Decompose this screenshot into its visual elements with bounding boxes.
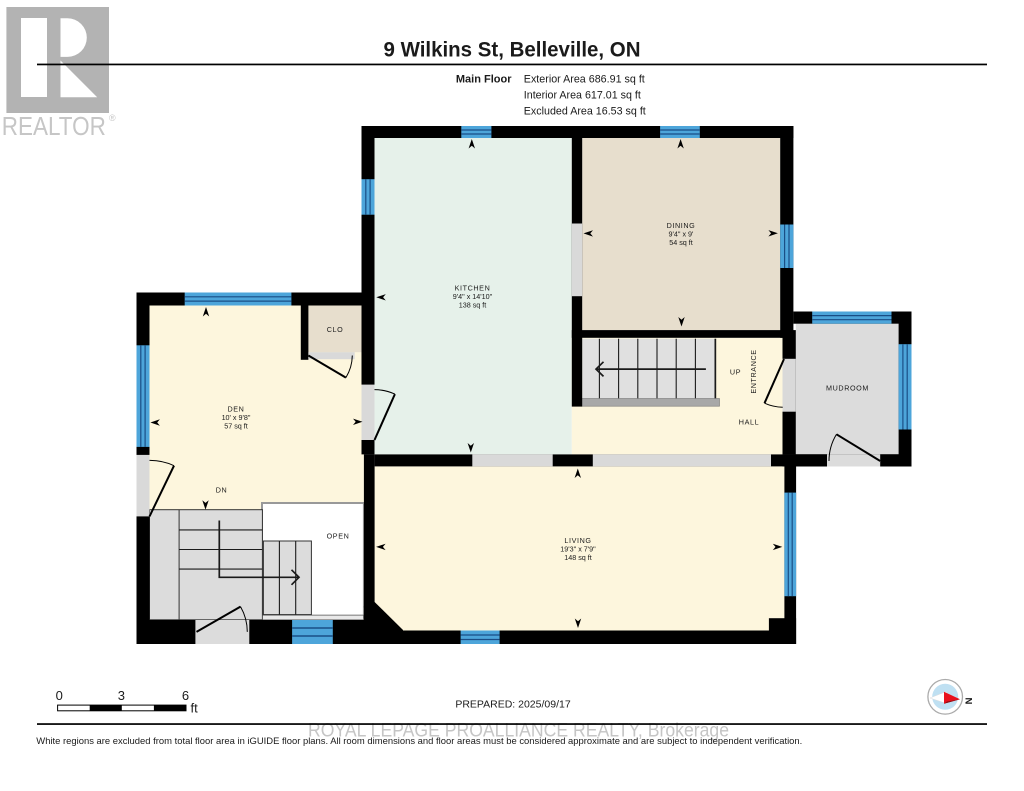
svg-text:ENTRANCE: ENTRANCE xyxy=(749,349,758,393)
svg-text:White regions are excluded fro: White regions are excluded from total fl… xyxy=(36,736,802,747)
svg-text:PREPARED: 2025/09/17: PREPARED: 2025/09/17 xyxy=(455,699,571,711)
svg-text:3: 3 xyxy=(118,688,125,703)
svg-text:ft: ft xyxy=(191,701,199,716)
svg-text:Main Floor: Main Floor xyxy=(456,73,512,85)
svg-text:®: ® xyxy=(109,113,116,123)
svg-text:CLO: CLO xyxy=(327,325,344,334)
svg-text:REALTOR: REALTOR xyxy=(2,113,106,141)
svg-text:54 sq ft: 54 sq ft xyxy=(669,238,693,247)
svg-text:138 sq ft: 138 sq ft xyxy=(459,301,487,310)
svg-text:KITCHEN: KITCHEN xyxy=(455,283,491,292)
svg-text:MUDROOM: MUDROOM xyxy=(826,384,869,393)
svg-text:HALL: HALL xyxy=(739,418,759,427)
svg-text:Exterior Area 686.91 sq ft: Exterior Area 686.91 sq ft xyxy=(524,73,645,85)
svg-text:DN: DN xyxy=(216,486,228,495)
svg-text:N: N xyxy=(963,698,974,705)
svg-text:0: 0 xyxy=(56,688,63,703)
svg-text:57 sq ft: 57 sq ft xyxy=(224,421,248,430)
svg-text:9 Wilkins St, Belleville, ON: 9 Wilkins St, Belleville, ON xyxy=(384,39,641,62)
svg-text:6: 6 xyxy=(182,688,189,703)
svg-text:Excluded Area 16.53 sq ft: Excluded Area 16.53 sq ft xyxy=(524,105,646,117)
svg-text:148 sq ft: 148 sq ft xyxy=(564,553,592,562)
svg-text:Interior Area 617.01 sq ft: Interior Area 617.01 sq ft xyxy=(524,89,641,101)
svg-text:UP: UP xyxy=(730,368,741,377)
svg-text:OPEN: OPEN xyxy=(327,532,350,541)
